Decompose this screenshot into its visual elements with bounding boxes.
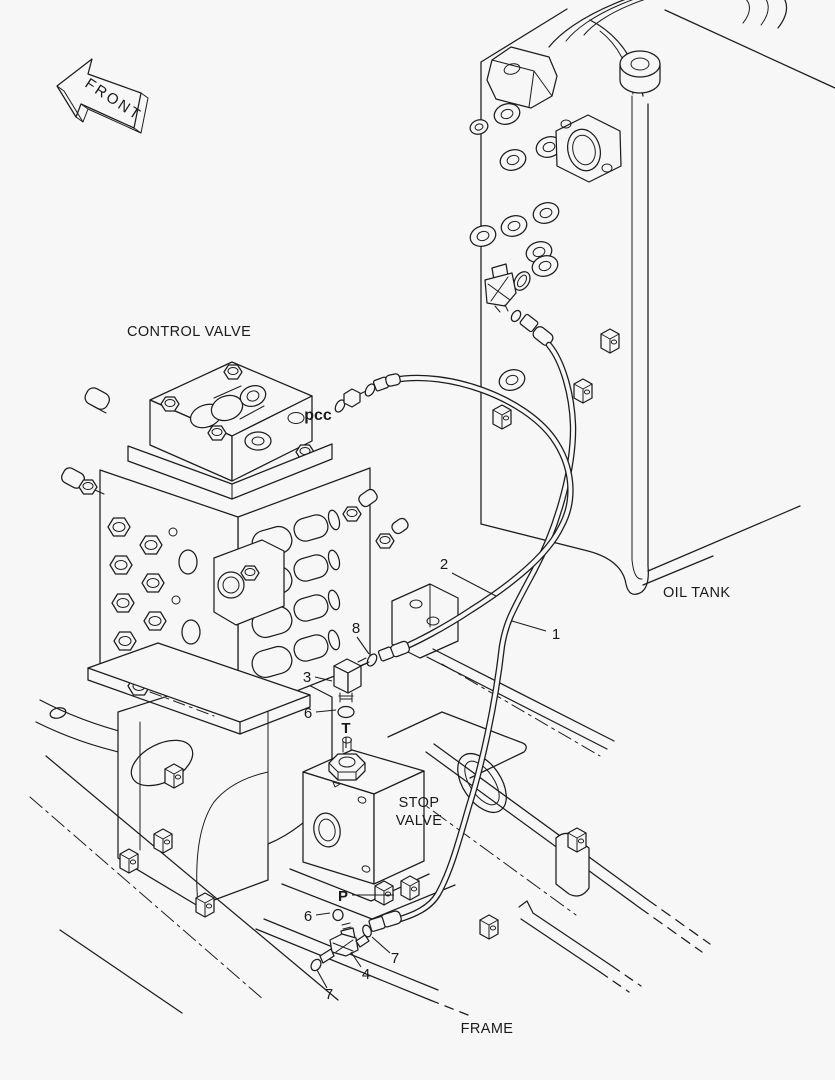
callout-6-top: 6 — [304, 705, 312, 722]
control-valve-label: CONTROL VALVE — [127, 324, 251, 340]
callout-7-left: 7 — [325, 986, 333, 1003]
callout-3: 3 — [303, 669, 311, 686]
callout-6-bottom: 6 — [304, 908, 312, 925]
callout-1: 1 — [552, 626, 560, 643]
tee-fitting-chain — [309, 910, 402, 973]
port-label-p: P — [338, 888, 348, 905]
port-label-t: T — [341, 720, 350, 737]
oil-tank-drawing — [468, 0, 835, 594]
stop-valve-label-line2: VALVE — [396, 813, 443, 829]
diagram-page: FRONT CONTROL VALVE OIL TANK STOP VALVE … — [0, 0, 835, 1080]
stop-valve-label-line1: STOP — [399, 795, 440, 811]
front-arrow: FRONT — [57, 59, 148, 133]
oil-tank-label: OIL TANK — [663, 585, 730, 601]
callout-2: 2 — [440, 556, 448, 573]
port-label-pcc: pcc — [304, 407, 332, 424]
parts-diagram: FRONT CONTROL VALVE OIL TANK STOP VALVE … — [0, 0, 835, 1080]
frame-label: FRAME — [461, 1021, 514, 1037]
tank-fitting-chain — [485, 252, 560, 347]
pcc-fitting-chain — [333, 373, 401, 413]
callout-4: 4 — [362, 966, 370, 983]
callout-7-right: 7 — [391, 950, 399, 967]
callout-8: 8 — [352, 620, 360, 637]
